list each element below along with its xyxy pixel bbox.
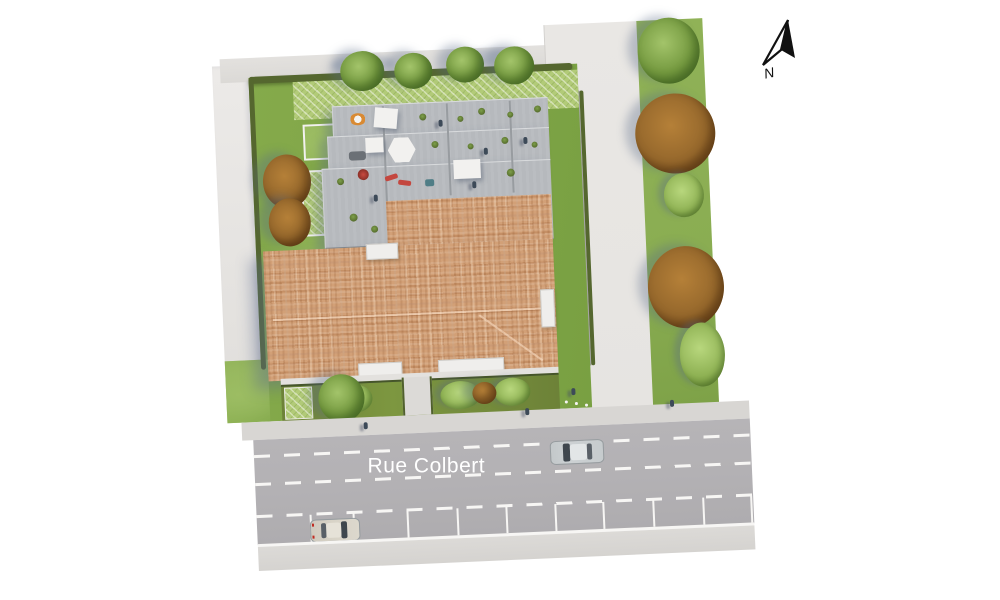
- entry-path: [402, 376, 434, 415]
- north-arrow: N: [752, 16, 806, 82]
- site-plan: Rue Colbert: [210, 9, 755, 576]
- car-roof: [570, 444, 588, 461]
- north-arrow-icon: N: [752, 16, 806, 82]
- compass-n-label: N: [762, 64, 776, 82]
- pedestrian: [364, 422, 368, 429]
- pedestrian: [571, 388, 575, 395]
- car-windshield: [341, 521, 348, 538]
- skylight: [366, 243, 399, 260]
- person-on-terrace: [374, 195, 378, 202]
- pedestrian: [525, 408, 529, 415]
- person-on-terrace: [472, 181, 476, 188]
- pergola: [453, 159, 481, 179]
- person-on-terrace: [523, 137, 527, 144]
- pedestrian: [670, 400, 674, 407]
- car-rear-window: [321, 523, 327, 538]
- person-on-terrace: [484, 148, 488, 155]
- teal-chairs: [425, 179, 434, 186]
- bollard: [585, 404, 588, 407]
- car-driving: [550, 439, 605, 465]
- person-on-terrace: [438, 120, 442, 127]
- hatched-patch: [284, 387, 313, 420]
- parasol: [374, 107, 398, 129]
- car-taillight: [312, 536, 314, 539]
- car-roof: [326, 522, 342, 538]
- street-label: Rue Colbert: [368, 455, 486, 479]
- car-rear-window: [587, 443, 593, 459]
- pergola: [365, 137, 384, 153]
- bollard: [565, 400, 568, 403]
- car-taillight: [312, 524, 314, 527]
- skylight: [540, 289, 556, 328]
- outdoor-sofa: [349, 151, 366, 161]
